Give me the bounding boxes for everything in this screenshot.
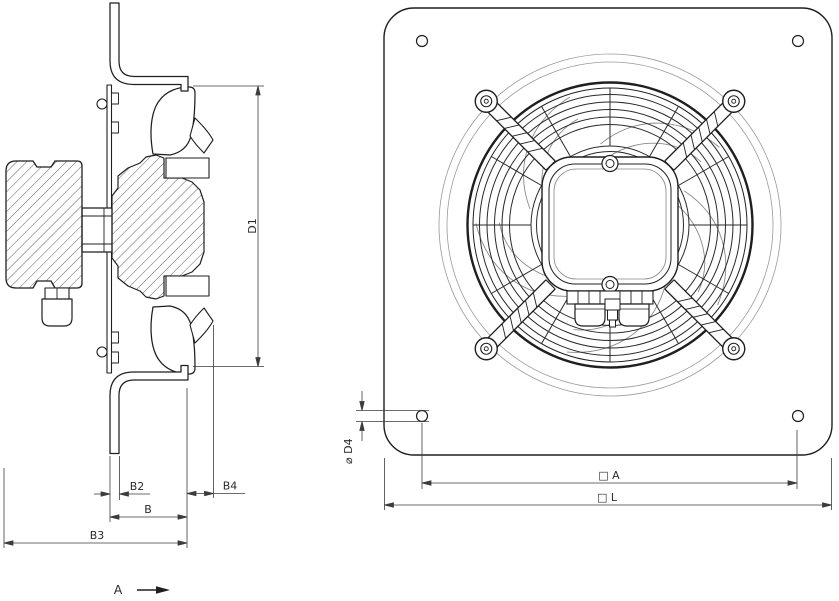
mounting-hole-bottom-right [793, 411, 804, 422]
dim-label-b: B [144, 503, 152, 516]
fan-blade-bottom [151, 306, 213, 374]
view-label-a: A [114, 582, 123, 597]
front-view: ⌀ D4 □ A □ L [342, 8, 832, 510]
plate-flange-bottom [110, 366, 188, 454]
dim-label-b4: B4 [223, 480, 238, 493]
motor-section [6, 161, 82, 288]
guard-clip-top [97, 99, 107, 109]
motor-shaft [82, 208, 112, 252]
dim-label-d1: D1 [246, 218, 259, 233]
mounting-hole-bottom-left [417, 411, 428, 422]
mounting-hole-top-left [417, 36, 428, 47]
motor-hub-cover [542, 156, 678, 293]
plate-flange-top [110, 3, 188, 91]
view-direction-arrow: A [114, 582, 170, 597]
dim-label-a: □ A [598, 469, 620, 482]
dim-label-d4: ⌀ D4 [342, 438, 355, 464]
dimension-b-group: B2 B4 B B3 [4, 325, 245, 548]
axial-fan-technical-drawing: D1 B2 B4 B [0, 0, 839, 601]
dim-label-l: □ L [597, 491, 618, 504]
side-view: D1 B2 B4 B [4, 3, 264, 597]
hub-screw-top [602, 156, 618, 172]
terminal-box-front [567, 291, 653, 327]
guard-clip-bottom [97, 347, 107, 357]
terminal-box-side [42, 288, 72, 326]
dim-label-b2: B2 [130, 480, 145, 493]
hub-screw-bottom [602, 277, 618, 293]
fan-blade-top [151, 87, 213, 155]
mounting-hole-top-right [793, 36, 804, 47]
dim-label-b3: B3 [90, 529, 105, 542]
impeller-hub-section [112, 155, 209, 299]
technical-drawing-page: D1 B2 B4 B [0, 0, 839, 601]
view-arrow-icon [156, 586, 170, 594]
